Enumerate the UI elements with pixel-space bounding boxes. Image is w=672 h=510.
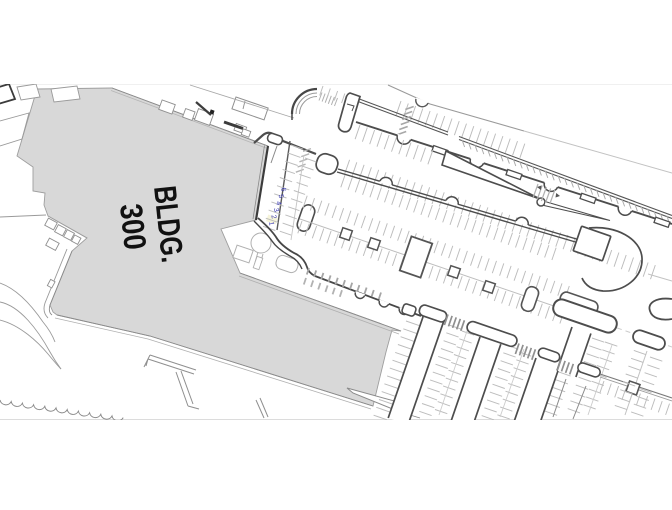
svg-text:300: 300 bbox=[113, 202, 154, 252]
